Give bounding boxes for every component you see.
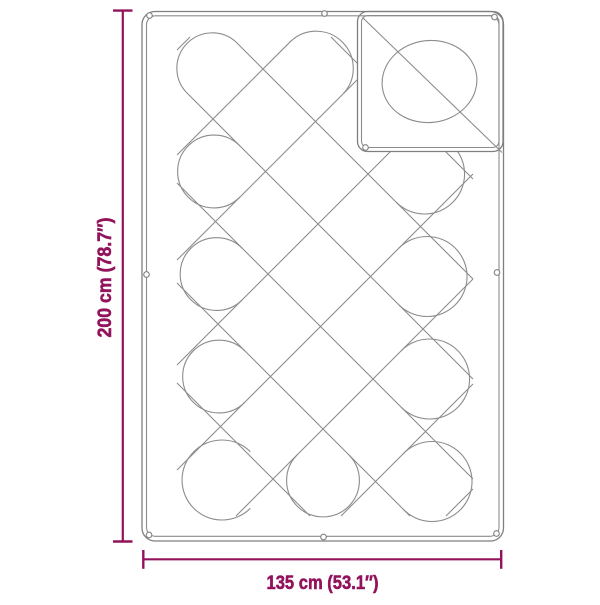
svg-text:135 cm (53.1″): 135 cm (53.1″) xyxy=(267,573,379,594)
svg-text:200 cm (78.7″): 200 cm (78.7″) xyxy=(95,218,116,338)
